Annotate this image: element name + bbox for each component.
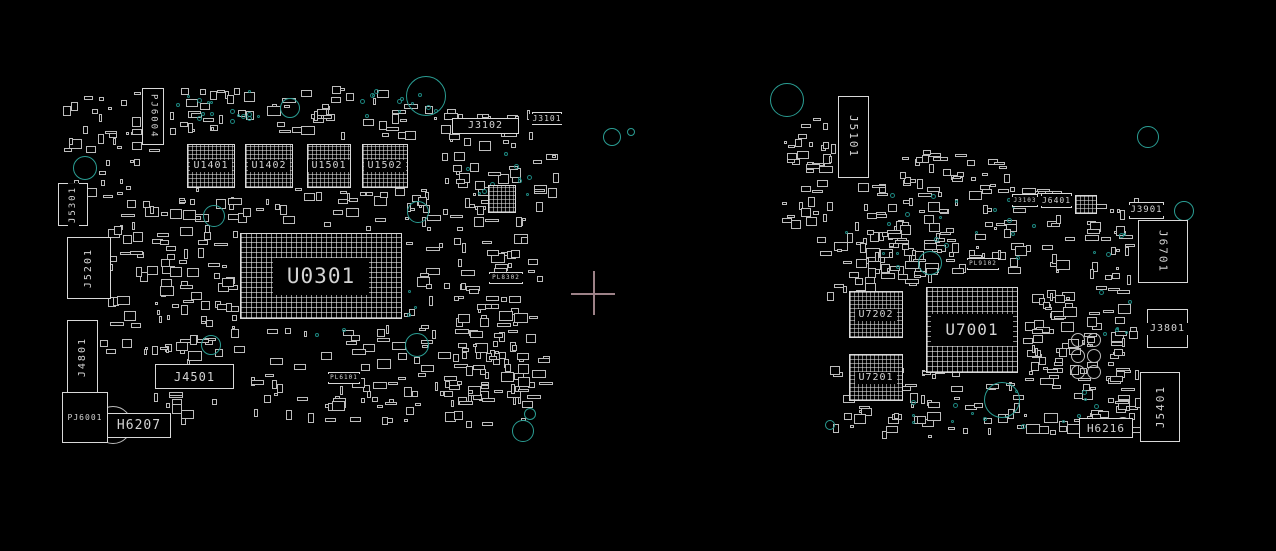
via-dot [230, 119, 235, 124]
via-dot [934, 237, 939, 242]
small-component [231, 329, 239, 338]
component-U7202[interactable]: U7202 [849, 291, 903, 338]
small-component [919, 210, 925, 213]
via-dot [911, 400, 916, 405]
small-component [914, 275, 921, 278]
small-component [150, 206, 154, 214]
small-component [479, 141, 491, 151]
component[interactable] [1075, 195, 1097, 214]
small-component [421, 189, 427, 192]
small-component [418, 373, 426, 377]
small-component [325, 418, 336, 422]
small-component [1135, 370, 1139, 380]
small-component [940, 232, 951, 235]
via-dot [466, 167, 470, 171]
via-dot [1007, 218, 1012, 223]
small-component [414, 357, 420, 364]
small-component [466, 421, 472, 428]
small-component [1120, 210, 1125, 220]
small-component [938, 192, 942, 197]
small-component [264, 395, 271, 403]
small-component [470, 331, 483, 338]
small-component [191, 292, 202, 300]
small-component [493, 341, 498, 347]
via-dot [207, 101, 210, 104]
small-component [441, 125, 451, 134]
via-dot [526, 193, 529, 196]
via-dot [1093, 251, 1096, 254]
small-component [308, 413, 314, 423]
component-PJ6004[interactable]: PJ6004 [142, 88, 164, 145]
small-component [1050, 430, 1056, 435]
small-component [464, 138, 471, 146]
via-dot [407, 313, 411, 317]
small-component [1101, 237, 1111, 241]
small-component [1054, 362, 1063, 366]
component-PL6101[interactable]: PL6101 [328, 372, 360, 384]
via-circle [603, 128, 621, 146]
via-dot [398, 110, 401, 113]
component-J5401[interactable]: J5401 [1140, 372, 1180, 442]
small-component [219, 115, 223, 124]
small-component [159, 316, 162, 323]
via-circle [73, 156, 97, 180]
via-circle [203, 205, 225, 227]
small-component [994, 227, 997, 230]
small-component [1125, 247, 1129, 256]
mounting-hole [1087, 349, 1101, 363]
component-J3101[interactable]: J3101 [532, 112, 562, 125]
component-label: J4801 [77, 334, 89, 380]
small-component [469, 204, 475, 208]
via-dot [1094, 404, 1099, 409]
small-component [1117, 290, 1130, 294]
small-component [532, 370, 546, 378]
small-component [782, 202, 787, 205]
via-circle [406, 76, 446, 116]
small-component [106, 160, 110, 166]
component-J4801[interactable]: J4801 [67, 320, 98, 394]
small-component [1037, 189, 1050, 192]
component-J6401[interactable]: J6401 [1041, 193, 1072, 208]
small-component [316, 192, 322, 201]
small-component [130, 251, 143, 255]
small-component [99, 97, 104, 101]
component-U1401[interactable]: U1401 [187, 144, 235, 188]
via-dot [953, 403, 958, 408]
component-J4501[interactable]: J4501 [155, 364, 234, 389]
small-component [1010, 187, 1015, 192]
component-PL9102[interactable]: PL9102 [967, 258, 999, 270]
small-component [1126, 406, 1130, 411]
small-component [929, 164, 934, 173]
small-component [511, 143, 516, 148]
small-component [924, 243, 937, 250]
small-component [198, 248, 204, 258]
small-component [921, 395, 925, 404]
small-component [943, 169, 951, 176]
via-dot [365, 114, 369, 118]
small-component [169, 392, 183, 396]
small-component [373, 382, 387, 389]
small-component [988, 428, 991, 435]
small-component [285, 328, 291, 334]
small-component [103, 195, 113, 198]
small-component [843, 286, 847, 293]
small-component [473, 344, 477, 347]
small-component [1040, 378, 1054, 385]
small-component [813, 118, 821, 121]
small-component [317, 109, 327, 116]
small-component [211, 127, 214, 131]
small-component [210, 91, 217, 100]
via-dot [370, 93, 375, 98]
small-component [784, 141, 787, 144]
small-component [1013, 208, 1026, 213]
small-component [117, 146, 122, 149]
small-component [951, 386, 963, 392]
small-component [511, 250, 520, 258]
component-J6701[interactable]: J6701 [1138, 220, 1188, 283]
via-dot [247, 116, 252, 121]
small-component [480, 318, 489, 327]
small-component [451, 400, 454, 407]
small-component [122, 339, 132, 348]
via-dot [931, 194, 936, 199]
small-component [888, 204, 897, 212]
via-dot [504, 152, 508, 156]
small-component [161, 259, 170, 267]
component-label: J3102 [465, 120, 506, 132]
small-component [867, 213, 877, 219]
small-component [1110, 376, 1123, 382]
small-component [473, 365, 485, 370]
component-label: U7202 [855, 309, 896, 321]
small-component [297, 397, 308, 401]
component-J3102[interactable]: J3102 [452, 118, 519, 134]
small-component [386, 325, 389, 334]
small-component [314, 111, 318, 121]
small-component [429, 296, 433, 306]
via-dot [210, 112, 214, 116]
small-component [858, 183, 869, 192]
component-J3103[interactable]: J3103 [1012, 194, 1038, 207]
small-component [1087, 317, 1097, 327]
small-component [274, 393, 278, 396]
small-component [204, 232, 211, 240]
small-component [154, 393, 158, 402]
mounting-hole [1071, 365, 1085, 379]
small-component [967, 160, 975, 166]
small-component [829, 156, 832, 163]
small-component [377, 338, 390, 342]
small-component [198, 240, 208, 245]
small-component [331, 97, 341, 103]
small-component [1052, 385, 1061, 389]
small-component [179, 200, 186, 203]
via-dot [951, 420, 954, 423]
small-component [933, 157, 941, 161]
small-component [477, 304, 486, 310]
small-component [886, 426, 898, 433]
small-component [929, 223, 940, 232]
via-dot [478, 192, 481, 195]
small-component [152, 346, 158, 355]
small-component [1065, 237, 1075, 241]
small-component [902, 157, 909, 160]
small-component [889, 243, 894, 247]
small-component [501, 297, 507, 302]
small-component [321, 352, 332, 360]
component-U1501[interactable]: U1501 [307, 144, 351, 188]
small-component [147, 266, 158, 275]
mounting-hole [1087, 365, 1101, 379]
small-component [905, 261, 919, 269]
component-U7201[interactable]: U7201 [849, 354, 903, 401]
small-component [421, 325, 429, 329]
small-component [939, 209, 948, 213]
small-component [256, 208, 264, 211]
small-component [1059, 348, 1067, 357]
small-component [916, 157, 923, 163]
small-component [537, 276, 543, 282]
small-component [488, 172, 501, 176]
small-component [830, 366, 840, 375]
small-component [201, 321, 206, 324]
small-component [897, 238, 907, 241]
small-component [528, 270, 535, 273]
small-component [395, 188, 405, 196]
small-component [806, 164, 820, 169]
via-dot [1084, 398, 1087, 401]
small-component [266, 199, 269, 205]
small-component [820, 251, 832, 256]
small-component [454, 152, 465, 161]
small-component [787, 215, 795, 218]
small-component [971, 177, 976, 181]
small-component [398, 377, 406, 380]
small-component [855, 222, 859, 231]
via-dot [527, 175, 532, 180]
small-component [1032, 329, 1043, 334]
component-U1402[interactable]: U1402 [245, 144, 293, 188]
via-dot [845, 231, 848, 234]
small-component [983, 205, 988, 214]
small-component [382, 417, 388, 425]
small-component [444, 391, 453, 397]
small-component [392, 114, 399, 124]
small-component [301, 90, 312, 97]
small-component [536, 202, 543, 212]
small-component [361, 398, 365, 403]
small-component [190, 335, 197, 345]
component-U7001[interactable]: U7001 [926, 287, 1018, 373]
small-component [521, 237, 528, 244]
via-dot [1106, 252, 1111, 257]
via-dot [210, 101, 213, 104]
component-label: J6701 [1157, 227, 1170, 276]
small-component [481, 385, 489, 389]
small-component [791, 220, 801, 229]
small-component [1111, 342, 1123, 346]
small-component [144, 349, 147, 355]
small-component [887, 230, 901, 234]
small-component [928, 274, 932, 283]
small-component [277, 122, 285, 127]
small-component [183, 300, 194, 303]
small-component [1127, 275, 1131, 285]
component-label: PJ6001 [65, 413, 106, 423]
small-component [529, 132, 533, 140]
component-J3901[interactable]: J3901 [1129, 202, 1164, 219]
small-component [1105, 275, 1112, 280]
component-label: PL9102 [966, 260, 1000, 268]
small-component [947, 239, 956, 242]
small-component [234, 88, 240, 95]
small-component [254, 409, 258, 417]
via-dot [983, 417, 987, 421]
small-component [1115, 317, 1125, 324]
small-component [157, 233, 169, 237]
small-component [196, 188, 199, 192]
small-component [937, 249, 942, 253]
small-component [243, 208, 251, 217]
via-circle [770, 83, 804, 117]
small-component [819, 166, 833, 173]
via-dot [912, 414, 915, 417]
small-component [286, 410, 292, 420]
small-component [1114, 349, 1123, 356]
small-component [1044, 413, 1058, 423]
small-component [485, 372, 489, 379]
small-component [462, 348, 469, 352]
small-component [900, 172, 906, 179]
boardview-canvas: PJ6004U1401U1402U1501U1502U0301J3102J310… [0, 0, 1276, 551]
small-component [813, 211, 819, 215]
small-component [508, 330, 518, 333]
small-component [1033, 335, 1043, 343]
component-label: U1401 [190, 160, 231, 172]
small-component [251, 380, 264, 385]
component-J5301[interactable]: J5301 [58, 183, 88, 226]
small-component [889, 252, 893, 258]
small-component [382, 133, 389, 137]
small-component [1108, 398, 1114, 403]
small-component [421, 365, 434, 372]
small-component [1090, 269, 1094, 279]
component-U1502[interactable]: U1502 [362, 144, 408, 188]
small-component [494, 390, 503, 393]
small-component [404, 387, 412, 397]
small-component [854, 414, 866, 424]
component-label: J5101 [847, 112, 860, 161]
small-component [454, 296, 459, 301]
small-component [974, 403, 983, 408]
small-component [86, 146, 96, 153]
small-component [798, 134, 807, 139]
via-circle [825, 420, 835, 430]
small-component [134, 159, 140, 166]
small-component [277, 384, 283, 393]
small-component [350, 417, 361, 422]
small-component [1042, 245, 1053, 250]
component-PL8302[interactable]: PL8302 [489, 272, 523, 284]
component-PJ6001[interactable]: PJ6001 [62, 392, 108, 443]
small-component [184, 249, 188, 259]
small-component [181, 410, 194, 419]
small-component [295, 188, 302, 191]
small-component [508, 263, 512, 268]
via-dot [1103, 332, 1107, 336]
via-dot [955, 200, 958, 203]
small-component [155, 302, 158, 305]
small-component [985, 222, 993, 227]
small-component [105, 131, 117, 134]
via-circle [627, 128, 635, 136]
via-circle [407, 201, 429, 223]
small-component [975, 234, 986, 240]
small-component [233, 231, 238, 238]
small-component [1129, 331, 1138, 339]
small-component [1056, 270, 1059, 273]
via-dot [1125, 331, 1128, 334]
small-component [801, 124, 811, 128]
small-component [149, 149, 160, 152]
small-component [501, 372, 514, 382]
small-component [1054, 316, 1066, 319]
small-component [180, 122, 188, 127]
small-component [1116, 267, 1119, 270]
small-component [998, 189, 1009, 193]
small-component [170, 209, 182, 219]
small-component [528, 259, 538, 265]
via-circle [201, 335, 221, 355]
small-component [526, 334, 536, 343]
small-component [801, 186, 811, 192]
small-component [166, 246, 176, 251]
component-label: J3103 [1010, 197, 1039, 205]
component-J5201[interactable]: J5201 [67, 237, 111, 299]
small-component [801, 208, 811, 217]
small-component [373, 98, 376, 105]
small-component [875, 252, 879, 262]
component-J3801[interactable]: J3801 [1147, 309, 1188, 348]
component-U0301[interactable]: U0301 [240, 233, 402, 319]
small-component [1045, 307, 1052, 310]
small-component [179, 260, 187, 264]
component-J5101[interactable]: J5101 [838, 96, 869, 178]
component-H6216[interactable]: H6216 [1079, 418, 1133, 438]
via-dot [514, 164, 519, 169]
small-component [462, 352, 467, 359]
via-dot [887, 222, 891, 226]
via-dot [1119, 233, 1124, 238]
component[interactable] [488, 185, 516, 213]
via-dot [971, 412, 974, 415]
small-component [181, 305, 188, 315]
component-H6207[interactable]: H6207 [107, 413, 171, 438]
small-component [455, 329, 469, 334]
small-component [426, 284, 432, 289]
small-component [445, 178, 449, 184]
component-label: H6207 [114, 418, 164, 433]
via-dot [518, 177, 521, 180]
small-component [265, 374, 274, 377]
small-component [976, 246, 979, 249]
small-component [1049, 375, 1059, 379]
small-component [517, 353, 529, 360]
small-component [443, 209, 448, 215]
